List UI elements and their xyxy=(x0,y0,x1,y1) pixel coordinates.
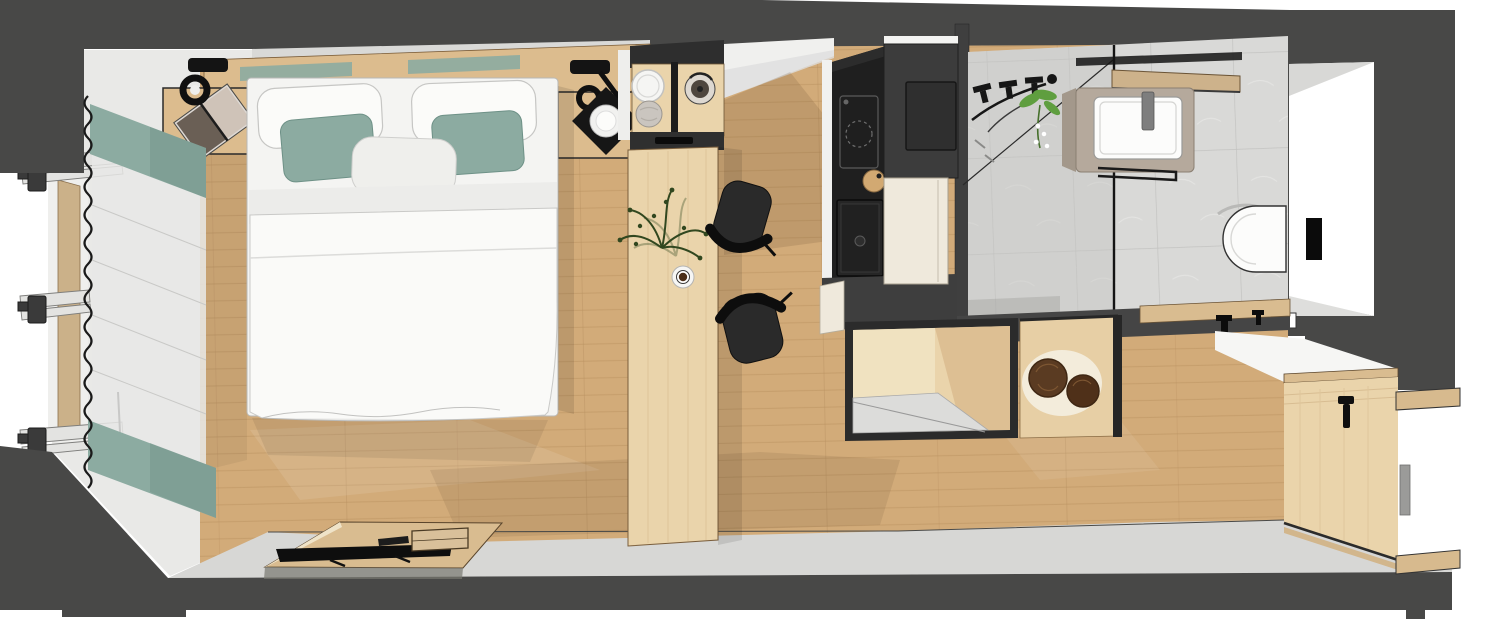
sideboard-front xyxy=(264,567,463,579)
door-frame-strike xyxy=(1400,465,1410,515)
bed-shadow xyxy=(558,86,574,414)
cutting-board xyxy=(863,170,885,192)
kettle xyxy=(685,74,715,104)
board-hole xyxy=(877,174,882,179)
door-leaf xyxy=(1289,62,1374,316)
double-bed xyxy=(247,78,574,462)
floorplan-canvas xyxy=(0,0,1506,644)
faucet xyxy=(1142,92,1154,130)
vanity-side xyxy=(1062,88,1076,172)
cabinet-end-panel xyxy=(820,281,844,334)
luggage-rack xyxy=(845,318,1018,441)
kitchen-side-panel xyxy=(822,60,832,292)
toilet-bowl xyxy=(1223,206,1286,272)
cooktop-knob xyxy=(844,100,849,105)
bathroom xyxy=(956,36,1322,344)
sheer-curtain xyxy=(92,150,206,474)
shelf-divider xyxy=(671,62,678,138)
floor-shadow xyxy=(206,110,247,470)
rack-back xyxy=(853,328,935,398)
sink-drain xyxy=(855,236,865,246)
coffee-cup xyxy=(672,266,694,288)
stool-box-side xyxy=(1113,315,1122,437)
wall-shelf-upper xyxy=(1396,388,1460,410)
washbasin xyxy=(1094,97,1182,159)
shelf-side-sliver xyxy=(618,50,630,140)
floorplan-svg xyxy=(0,0,1506,644)
stool-unit xyxy=(1020,315,1122,438)
duvet xyxy=(250,208,557,421)
drawer-handle xyxy=(655,137,693,144)
bed-shadow xyxy=(252,418,548,462)
door-recess xyxy=(1283,62,1374,328)
bread-basket xyxy=(636,101,662,127)
work-table xyxy=(628,147,718,546)
flush-plate xyxy=(1306,218,1322,260)
kitchenette xyxy=(820,36,958,334)
wardrobe-panel xyxy=(906,82,956,150)
window-curtains xyxy=(85,96,217,518)
